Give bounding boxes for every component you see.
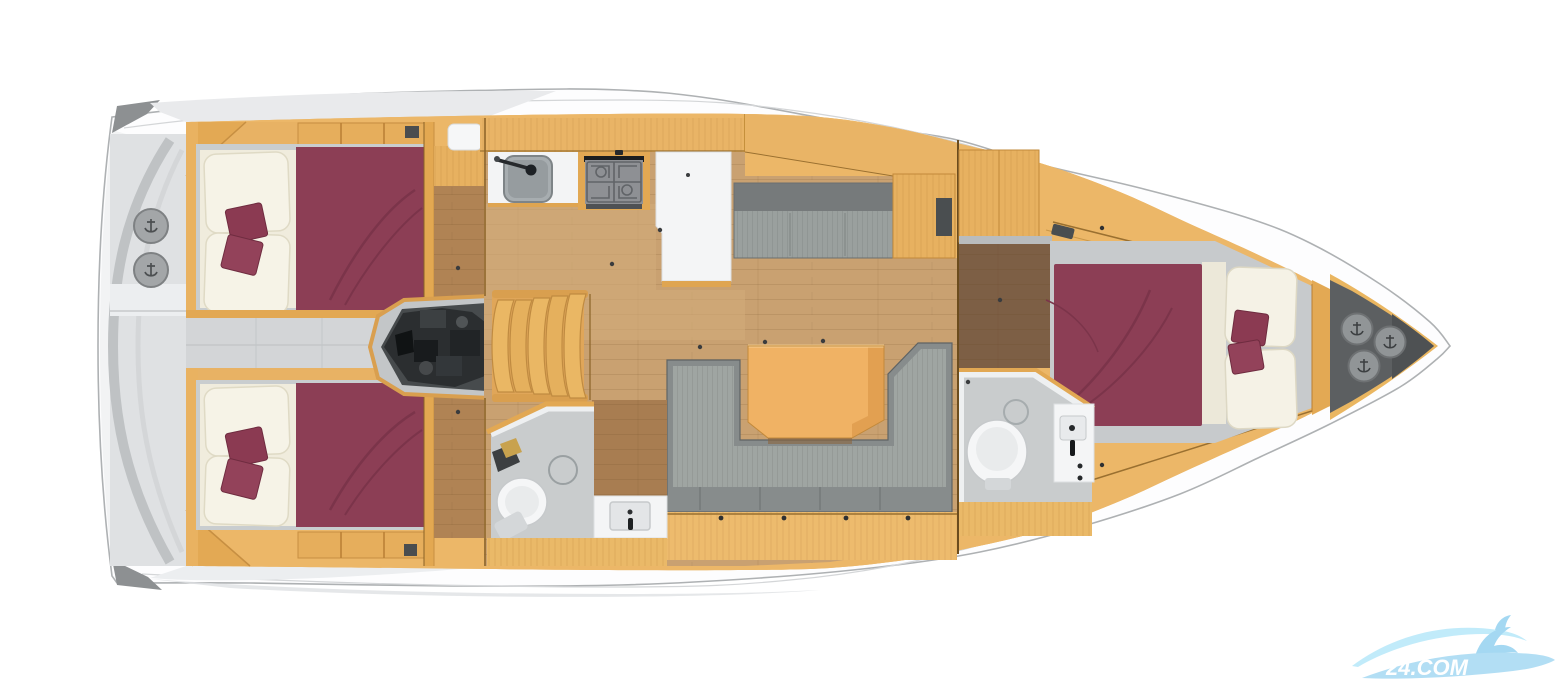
- svg-text:24.COM: 24.COM: [1385, 655, 1469, 680]
